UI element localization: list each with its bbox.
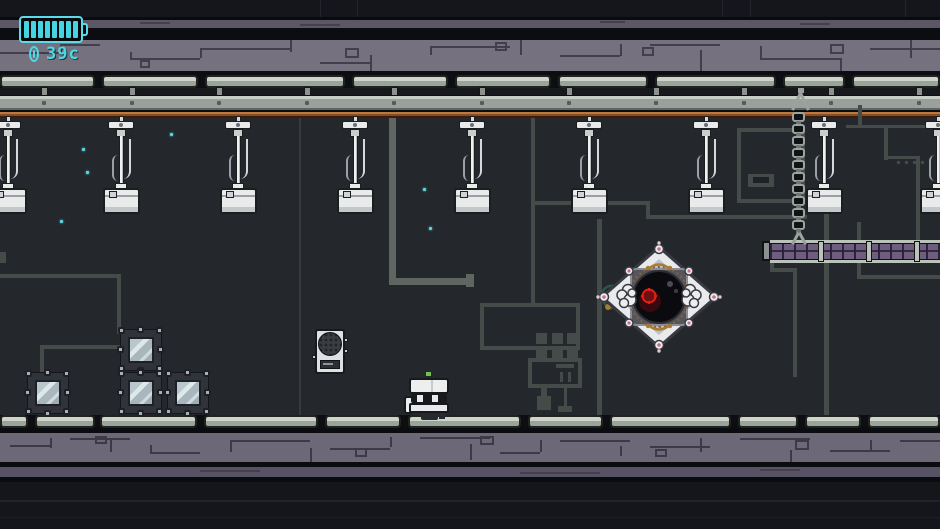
pipe (0, 252, 6, 263)
wall-dot (897, 161, 900, 164)
crate-glass (35, 380, 61, 406)
pipe (531, 118, 535, 305)
beam-rivet (130, 101, 134, 105)
lamp-bracket-hole (587, 123, 591, 127)
beam-rivet (42, 101, 46, 105)
lamp-box-latch (226, 191, 234, 198)
circuit-trace (620, 44, 622, 56)
rail-segment (738, 415, 798, 428)
console-stub (552, 350, 563, 358)
console-stub (536, 350, 547, 358)
lamp-cable (229, 155, 235, 181)
lamp-cable (463, 155, 469, 181)
pipe (389, 278, 470, 285)
speaker-tab (312, 355, 316, 359)
circuit-trace (800, 23, 830, 25)
lamp-bracket-hole (822, 123, 826, 127)
circuit-component (495, 42, 507, 51)
game-viewport: 39c (0, 0, 940, 529)
wall-dot (905, 161, 908, 164)
rail-segment (205, 75, 345, 88)
wall-band (0, 28, 940, 40)
rail-segment (655, 75, 776, 88)
circuit-trace (390, 437, 392, 447)
boss-gold-dot (668, 324, 672, 328)
crate-bolt (118, 370, 125, 377)
particle-dot (60, 220, 63, 223)
crate-bolt (63, 370, 70, 377)
circuit-component (642, 47, 654, 56)
crate-glass (175, 380, 201, 406)
lamp-bracket-hole (119, 123, 123, 127)
circuit-component (95, 436, 107, 444)
crate-bolt (157, 346, 164, 353)
crate-bolt (203, 370, 210, 377)
circuit-trace (310, 448, 312, 462)
console-mark (568, 372, 571, 382)
platform-divider (866, 241, 872, 262)
circuit-trace (50, 438, 52, 448)
platform-divider (818, 241, 824, 262)
pipe (40, 345, 44, 373)
particle-dot (82, 148, 85, 151)
wall-line (357, 0, 358, 17)
console-button (567, 333, 578, 344)
circuit-trace (370, 55, 372, 71)
rail-segment (352, 75, 448, 88)
wall-dot (913, 161, 916, 164)
circuit-trace (140, 22, 170, 24)
circuit-trace (300, 24, 340, 26)
lamp-box-shade (808, 207, 841, 212)
vent-slot (753, 177, 769, 183)
crate-bolt (165, 370, 172, 377)
rail-segment (325, 415, 401, 428)
crate-bolt (44, 369, 51, 376)
lamp-bracket-hole (936, 123, 940, 127)
circuit-trace (700, 50, 702, 71)
circuit-trace (900, 440, 940, 442)
pipe (40, 345, 127, 349)
lamp-box-shade (0, 207, 25, 212)
boss-eye-highlight (667, 281, 673, 287)
crate-bolt (156, 408, 163, 415)
wall-line (750, 0, 751, 17)
lamp-cable (708, 139, 716, 179)
pipe (299, 118, 301, 415)
speaker-tab (344, 338, 348, 342)
console-leg (537, 396, 551, 410)
lamp-cable (346, 155, 352, 181)
lamp-cable (474, 139, 482, 179)
battery-cell (73, 21, 78, 38)
crate-bolt (137, 369, 144, 376)
circuit-trace (760, 46, 762, 58)
rail-segment (102, 75, 198, 88)
console-mark (560, 372, 563, 382)
crate-glass (128, 337, 154, 363)
coin-amount: 39c (46, 44, 80, 64)
pipe (884, 156, 920, 159)
lamp-box-latch (694, 191, 702, 198)
console-leg (558, 406, 572, 412)
crate-bolt (118, 408, 125, 415)
crate-bolt (117, 389, 124, 396)
lamp-box-latch (343, 191, 351, 198)
boss-pupil (643, 290, 656, 303)
circuit-trace (10, 445, 50, 447)
circuit-trace (910, 40, 912, 58)
lamp-box-shade (573, 207, 606, 212)
robot-head-seam (431, 380, 433, 392)
circuit-trace (870, 440, 872, 450)
lamp-cable (929, 155, 935, 181)
circuit-trace (620, 446, 622, 456)
circuit-component (795, 440, 809, 450)
circuit-trace (200, 48, 202, 58)
crate-bolt (203, 408, 210, 415)
rail-segment (783, 75, 845, 88)
lamp-cable (112, 155, 118, 181)
console-stub (567, 350, 578, 358)
console-button (536, 333, 547, 344)
beam-rivet (654, 101, 658, 105)
circuit-component (655, 449, 667, 457)
circuit-trace (290, 40, 292, 52)
rail-segment (528, 415, 603, 428)
circuit-trace (600, 21, 625, 23)
speaker-label-tick (323, 363, 333, 365)
pipe (793, 268, 797, 377)
boss-eye-highlight (674, 289, 678, 293)
lamp-cable (0, 155, 5, 181)
boss-gold-dot (646, 266, 650, 270)
beam-rivet (742, 101, 746, 105)
circuit-trace (540, 440, 542, 452)
pipe (466, 274, 474, 287)
lamp-cable (240, 139, 248, 179)
hud-battery (19, 16, 88, 43)
circuit-trace (790, 450, 792, 462)
lamp-cable (123, 139, 131, 179)
lamp-bracket-hole (236, 123, 240, 127)
lamp-bracket-hole (470, 123, 474, 127)
lamp-box-shade (922, 207, 940, 212)
circuit-component (830, 44, 844, 54)
circuit-trace (150, 445, 152, 453)
pipe (858, 105, 862, 127)
battery-body (19, 16, 83, 43)
battery-cell (24, 21, 29, 38)
circuit-trace (230, 440, 310, 442)
lamp-cable (10, 139, 18, 179)
circuit-trace (470, 444, 472, 460)
lamp-cable (357, 139, 365, 179)
circuit-trace (110, 438, 112, 452)
circuit-trace (650, 44, 720, 46)
lamp-box-shade (690, 207, 723, 212)
circuit-trace (230, 440, 232, 452)
circuit-trace (200, 48, 290, 50)
rail-segment (852, 75, 940, 88)
circuit-trace (500, 452, 540, 454)
pipe (389, 118, 396, 285)
lamp-cable (826, 139, 834, 179)
pipe (117, 274, 121, 334)
beam-rivet (829, 101, 833, 105)
circuit-trace (520, 472, 600, 474)
lamp-box-shade (339, 207, 372, 212)
circuit-trace (130, 52, 132, 59)
circuit-trace (560, 440, 630, 442)
particle-dot (423, 188, 426, 191)
console-body (528, 358, 582, 388)
robot-head (409, 378, 449, 394)
beam-rivet (217, 101, 221, 105)
pipe (646, 215, 807, 219)
robot-tread (421, 413, 438, 420)
circuit-component (480, 436, 494, 445)
wall-line (0, 500, 940, 502)
console-button (552, 333, 563, 344)
particle-dot (170, 133, 173, 136)
console-leg (541, 388, 547, 396)
lamp-box-shade (456, 207, 489, 212)
circuit-trace (840, 58, 842, 71)
battery-cell (52, 21, 57, 38)
crate-bolt (117, 346, 124, 353)
wall-line (722, 0, 723, 17)
particle-dot (429, 227, 432, 230)
circuit-trace (760, 469, 800, 471)
lamp-box-latch (0, 191, 4, 198)
circuit-component (140, 60, 150, 68)
lamp-box-latch (812, 191, 820, 198)
crate-bolt (25, 408, 32, 415)
circuit-component (355, 448, 367, 457)
circuit-trace (520, 40, 522, 55)
circuit-trace (830, 450, 890, 452)
speaker-tab (344, 349, 348, 353)
circuit-trace (430, 46, 432, 55)
circuit-trace (150, 452, 200, 454)
circuit-trace (870, 48, 940, 50)
crate-bolt (63, 408, 70, 415)
lamp-cable (580, 155, 586, 181)
crate-bolt (165, 408, 172, 415)
console-mark (556, 364, 574, 368)
robot-eye (432, 395, 438, 402)
beam-rivet (917, 101, 921, 105)
robot-body (409, 403, 449, 413)
crate-bolt (157, 389, 164, 396)
lamp-box-latch (109, 191, 117, 198)
battery-nub (83, 23, 88, 36)
lamp-cable (591, 139, 599, 179)
crate-bolt (25, 370, 32, 377)
lamp-box-latch (926, 191, 934, 198)
wall-line (905, 0, 906, 17)
console-outline (480, 303, 580, 350)
rail-segment (35, 415, 95, 428)
crate-bolt (156, 370, 163, 377)
particle-dot (86, 171, 89, 174)
crate-bolt (24, 389, 31, 396)
circuit-trace (760, 58, 840, 60)
lamp-box-latch (577, 191, 585, 198)
boss-gold-dot (668, 266, 672, 270)
rail-segment (100, 415, 197, 428)
rail-segment (868, 415, 940, 428)
battery-cell (31, 21, 36, 38)
wall-line (320, 0, 321, 17)
circuit-trace (200, 470, 260, 472)
crate-bolt (204, 389, 211, 396)
hex-drone-boss (594, 238, 726, 356)
battery-cell (59, 21, 64, 38)
circuit-trace (320, 62, 370, 64)
coin-counter: 39c (29, 44, 80, 64)
wall-dot (921, 161, 924, 164)
crate-bolt (137, 326, 144, 333)
lamp-bracket-hole (704, 123, 708, 127)
platform-divider (914, 241, 920, 262)
crate-glass (128, 380, 154, 406)
circuit-trace (700, 438, 702, 452)
crate-bolt (118, 327, 125, 334)
crate-bolt (64, 389, 71, 396)
robot-foot (439, 413, 445, 419)
wall-band (0, 0, 940, 17)
crate-bolt (164, 389, 171, 396)
speaker-grille (318, 332, 342, 356)
rail-segment (610, 415, 731, 428)
pipe (857, 275, 940, 279)
lamp-box-shade (222, 207, 255, 212)
lamp-cable (697, 155, 703, 181)
lamp-cable (815, 155, 821, 181)
beam-rivet (305, 101, 309, 105)
rail-segment (204, 415, 318, 428)
battery-cell (38, 21, 43, 38)
battery-cell (45, 21, 50, 38)
robot-eye (417, 395, 423, 402)
rail-segment (0, 415, 28, 428)
crate-bolt (156, 327, 163, 334)
circuit-component (345, 48, 359, 58)
lamp-box-shade (105, 207, 138, 212)
lamp-bracket-hole (353, 123, 357, 127)
beam-rivet (480, 101, 484, 105)
wall-band (0, 482, 940, 529)
rail-segment (805, 415, 861, 428)
boss-gold-dot (646, 324, 650, 328)
beam-rivet (392, 101, 396, 105)
lamp-bracket (0, 121, 21, 129)
battery-cell (66, 21, 71, 38)
lamp-box-latch (460, 191, 468, 198)
wall-line (0, 517, 940, 518)
rail-segment (455, 75, 551, 88)
beam-rivet (567, 101, 571, 105)
circuit-trace (560, 55, 620, 57)
pipe (0, 274, 121, 278)
lamp-bracket-hole (6, 123, 10, 127)
robot-antenna-light (426, 372, 431, 376)
crate-bolt (184, 369, 191, 376)
coin-icon (29, 46, 39, 62)
